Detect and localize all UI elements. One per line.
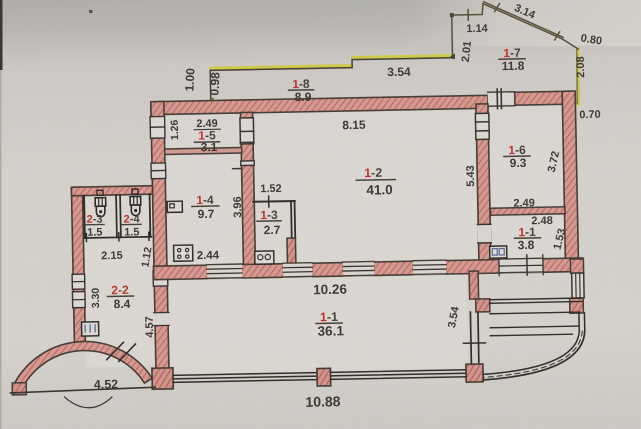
svg-text:1-2: 1-2 bbox=[364, 166, 382, 180]
svg-text:8.9: 8.9 bbox=[295, 90, 312, 104]
svg-text:0.98: 0.98 bbox=[207, 71, 222, 95]
svg-text:2.15: 2.15 bbox=[101, 250, 123, 262]
svg-text:8.15: 8.15 bbox=[342, 118, 366, 132]
svg-text:4.52: 4.52 bbox=[94, 377, 119, 391]
svg-text:5.43: 5.43 bbox=[465, 165, 477, 187]
svg-text:1.00: 1.00 bbox=[182, 67, 197, 91]
svg-text:1-4: 1-4 bbox=[196, 193, 214, 207]
svg-text:1.26: 1.26 bbox=[169, 119, 181, 140]
svg-text:11.8: 11.8 bbox=[501, 59, 524, 73]
svg-text:36.1: 36.1 bbox=[317, 323, 344, 339]
svg-text:2.44: 2.44 bbox=[197, 250, 220, 262]
svg-text:8.4: 8.4 bbox=[113, 297, 130, 311]
svg-text:10.26: 10.26 bbox=[313, 282, 348, 298]
svg-text:10.88: 10.88 bbox=[305, 393, 341, 410]
svg-text:1.5: 1.5 bbox=[87, 226, 103, 238]
svg-text:2.08: 2.08 bbox=[575, 56, 587, 78]
svg-text:3.8: 3.8 bbox=[518, 238, 535, 252]
svg-text:1.5: 1.5 bbox=[124, 226, 140, 238]
svg-text:41.0: 41.0 bbox=[366, 182, 393, 198]
svg-text:2.01: 2.01 bbox=[460, 40, 474, 63]
svg-text:4.57: 4.57 bbox=[144, 316, 156, 338]
svg-text:1-3: 1-3 bbox=[260, 208, 278, 222]
svg-text:1-1: 1-1 bbox=[320, 310, 338, 324]
svg-text:2.49: 2.49 bbox=[513, 197, 535, 209]
svg-text:3.1: 3.1 bbox=[201, 140, 218, 154]
svg-text:9.3: 9.3 bbox=[510, 156, 527, 170]
svg-text:2.7: 2.7 bbox=[264, 223, 281, 237]
svg-text:3.54: 3.54 bbox=[387, 65, 411, 79]
svg-text:1.52: 1.52 bbox=[260, 183, 282, 195]
svg-text:9.7: 9.7 bbox=[197, 207, 214, 221]
svg-text:1.14: 1.14 bbox=[466, 23, 489, 35]
svg-text:3.30: 3.30 bbox=[90, 288, 102, 309]
svg-text:3.96: 3.96 bbox=[232, 196, 244, 218]
svg-text:0.70: 0.70 bbox=[579, 109, 601, 121]
svg-text:2-2: 2-2 bbox=[111, 283, 129, 297]
